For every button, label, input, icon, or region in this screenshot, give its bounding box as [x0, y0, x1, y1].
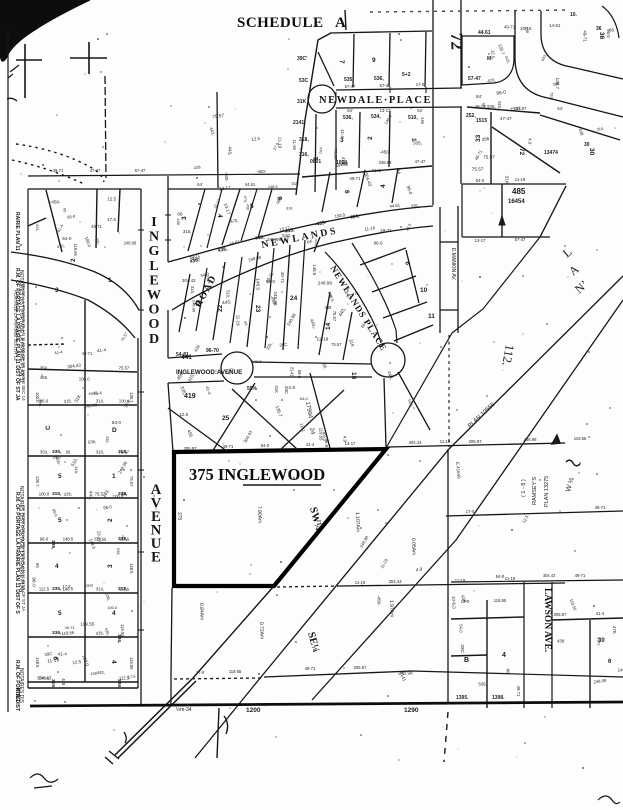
svg-text:112.5: 112.5 [39, 587, 50, 592]
svg-text:5: 5 [250, 203, 254, 210]
svg-text:535.: 535. [344, 77, 354, 83]
svg-text:66: 66 [506, 669, 511, 675]
svg-text:1: 1 [108, 277, 112, 284]
svg-text:10-6.0: 10-6.0 [451, 596, 456, 609]
svg-text:RAMSEY’S: RAMSEY’S [532, 477, 538, 505]
svg-text:536,: 536, [116, 548, 121, 556]
svg-text:536,: 536, [374, 76, 384, 82]
svg-text:22: 22 [217, 304, 224, 312]
svg-text:17.5: 17.5 [107, 217, 117, 222]
svg-text:0.72Am: 0.72Am [258, 622, 265, 639]
svg-text:4.9: 4.9 [416, 566, 423, 572]
svg-text:75.57: 75.57 [95, 492, 106, 497]
svg-text:438: 438 [90, 671, 97, 676]
svg-text:17-0: 17-0 [416, 82, 425, 87]
svg-text:64’: 64’ [476, 94, 482, 99]
svg-text:335,: 335, [105, 436, 110, 444]
svg-text:O: O [149, 303, 160, 318]
svg-text:4: 4 [110, 660, 117, 664]
svg-text:R.M. OF PORTAGE LA PRAIRIE PLA: R.M. OF PORTAGE LA PRAIRIE PLAN 11 DIST … [14, 268, 20, 401]
svg-text:47-47: 47-47 [415, 159, 426, 164]
svg-text:119.55: 119.55 [129, 657, 134, 670]
svg-text:6: 6 [277, 196, 284, 200]
svg-text:438: 438 [325, 305, 333, 310]
svg-text:64': 64' [417, 108, 423, 113]
svg-text:1.97Am: 1.97Am [388, 600, 395, 617]
svg-text:E.MANKIN AV.: E.MANKIN AV. [450, 248, 456, 281]
svg-text:1: 1 [112, 473, 116, 480]
svg-text:510,: 510, [550, 93, 555, 101]
svg-text:315,: 315, [52, 491, 62, 497]
svg-text:57-47: 57-47 [135, 168, 146, 173]
svg-text:536,: 536, [343, 115, 353, 121]
svg-text:72: 72 [447, 32, 467, 50]
svg-text:205.97: 205.97 [184, 446, 197, 451]
svg-text:I: I [151, 215, 156, 230]
svg-text:5+2: 5+2 [402, 72, 411, 78]
svg-text:49-71: 49-71 [583, 30, 588, 42]
svg-text:64': 64' [557, 106, 563, 111]
svg-text:100.0: 100.0 [119, 398, 130, 404]
svg-text:510,: 510, [408, 115, 418, 121]
svg-text:310,: 310, [96, 398, 104, 403]
svg-text:335,: 335, [96, 630, 105, 636]
svg-text:18: 18 [350, 372, 357, 380]
svg-text:17-0: 17-0 [196, 670, 205, 675]
svg-text:49-71: 49-71 [53, 168, 64, 173]
svg-text:13-17: 13-17 [380, 108, 391, 113]
svg-text:11-19: 11-19 [317, 336, 329, 342]
svg-text:49-71: 49-71 [380, 228, 392, 233]
svg-text:148.5: 148.5 [35, 657, 40, 668]
svg-text:318,: 318, [299, 137, 309, 143]
svg-text:9: 9 [372, 57, 376, 64]
svg-text:4.9: 4.9 [527, 138, 532, 145]
svg-text:315,: 315, [183, 229, 192, 234]
svg-text:375 INGLEWOOD: 375 INGLEWOOD [189, 465, 325, 484]
svg-text:49-71: 49-71 [65, 625, 76, 630]
svg-text:3: 3 [55, 287, 59, 294]
svg-text:75.57: 75.57 [129, 476, 134, 487]
svg-text:39C: 39C [44, 651, 52, 657]
svg-text:D: D [112, 427, 117, 434]
svg-text:54-0: 54-0 [62, 236, 72, 241]
svg-text:5: 5 [58, 473, 62, 480]
svg-text:96-0: 96-0 [40, 399, 49, 404]
svg-text:100.0: 100.0 [79, 376, 90, 381]
svg-text:336,: 336, [50, 540, 56, 550]
svg-text:1.107Am: 1.107Am [354, 512, 361, 532]
svg-text:7: 7 [338, 60, 345, 64]
svg-text:4: 4 [216, 214, 223, 218]
svg-text:53C: 53C [299, 78, 309, 84]
svg-text:350,: 350, [40, 449, 48, 454]
svg-text:( 1 - 8 ): ( 1 - 8 ) [521, 479, 527, 497]
svg-text:148.5: 148.5 [312, 264, 317, 275]
svg-text:148.5: 148.5 [252, 359, 263, 364]
svg-text:2: 2 [70, 258, 77, 262]
svg-text:25: 25 [222, 415, 230, 422]
svg-text:4: 4 [380, 184, 387, 188]
svg-text:148.5: 148.5 [618, 668, 623, 673]
svg-text:-450-: -450- [224, 172, 229, 183]
svg-text:31K: 31K [297, 99, 307, 105]
svg-text:470,: 470, [57, 243, 65, 249]
svg-text:11-19: 11-19 [278, 137, 283, 149]
svg-text:350,: 350, [40, 365, 48, 370]
svg-text:RAIRIE PLAN 11: RAIRIE PLAN 11 [14, 212, 20, 251]
svg-text:75.57: 75.57 [472, 166, 484, 171]
svg-text:1395.: 1395. [456, 695, 469, 701]
svg-text:3: 3 [107, 564, 114, 568]
svg-text:24: 24 [290, 295, 298, 302]
svg-text:438: 438 [61, 678, 66, 686]
svg-text:57-47: 57-47 [515, 237, 526, 242]
svg-text:205.97: 205.97 [469, 439, 482, 444]
svg-text:148.5: 148.5 [63, 537, 74, 542]
svg-text:N: N [149, 230, 159, 245]
svg-text:248.98: 248.98 [318, 280, 333, 285]
svg-text:31K: 31K [291, 180, 299, 186]
svg-text:315,: 315, [74, 466, 79, 474]
svg-text:75.57: 75.57 [332, 311, 337, 322]
svg-text:54-0: 54-0 [476, 178, 485, 183]
svg-text:-450-: -450- [256, 169, 267, 174]
svg-text:470,: 470, [243, 196, 248, 204]
svg-text:72: 72 [518, 148, 525, 156]
svg-text:D: D [149, 332, 159, 347]
svg-text:11-19: 11-19 [355, 580, 366, 585]
svg-text:44.61: 44.61 [245, 182, 256, 187]
svg-text:B: B [464, 657, 469, 664]
svg-text:470,: 470, [352, 291, 360, 296]
svg-text:47-47: 47-47 [90, 168, 101, 173]
svg-text:E: E [149, 273, 158, 288]
svg-text:536,: 536, [479, 682, 487, 687]
svg-text:14: 14 [325, 322, 332, 330]
svg-text:252,: 252, [466, 113, 476, 119]
svg-text:57-47: 57-47 [345, 84, 356, 89]
svg-text:66: 66 [63, 208, 68, 212]
svg-text:336,: 336, [116, 679, 122, 689]
svg-text:64': 64' [347, 108, 353, 113]
svg-text:12.5: 12.5 [491, 50, 496, 59]
svg-text:1398.: 1398. [492, 695, 505, 701]
svg-text:L: L [149, 259, 158, 274]
svg-text:6: 6 [343, 190, 350, 194]
svg-text:14-61: 14-61 [549, 23, 561, 28]
svg-text:100.0: 100.0 [39, 492, 50, 497]
svg-text:304.43: 304.43 [346, 285, 351, 298]
svg-text:112.5: 112.5 [119, 586, 130, 592]
svg-text:54-81: 54-81 [176, 352, 189, 358]
svg-text:7.90Am: 7.90Am [256, 506, 263, 523]
svg-text:49-71: 49-71 [305, 666, 316, 671]
svg-text:5: 5 [58, 610, 62, 617]
svg-text:17-0: 17-0 [466, 509, 475, 514]
svg-text:75.57: 75.57 [119, 366, 130, 371]
svg-text:10: 10 [420, 287, 428, 294]
svg-text:510,: 510, [497, 101, 502, 109]
svg-text:438: 438 [557, 638, 565, 643]
svg-text:9: 9 [405, 261, 412, 265]
svg-text:443,: 443, [35, 224, 40, 232]
svg-text:16454: 16454 [508, 199, 525, 205]
svg-text:119.55: 119.55 [574, 436, 587, 441]
svg-text:304.43: 304.43 [409, 440, 422, 445]
svg-text:49-71: 49-71 [504, 24, 516, 29]
svg-text:335,: 335, [487, 104, 496, 110]
svg-text:510,: 510, [226, 290, 231, 298]
svg-text:310,: 310, [96, 586, 104, 591]
svg-text:304.43: 304.43 [182, 278, 196, 283]
svg-text:1515: 1515 [476, 118, 487, 124]
svg-text:470,: 470, [319, 147, 323, 154]
svg-text:100.0: 100.0 [35, 392, 40, 403]
svg-text:456: 456 [40, 375, 48, 380]
svg-text:41-4: 41-4 [306, 442, 315, 447]
svg-text:205.97: 205.97 [554, 612, 567, 617]
svg-text:49-71: 49-71 [595, 505, 606, 510]
svg-text:54-0: 54-0 [300, 396, 309, 401]
svg-text:LAWSON AVE.: LAWSON AVE. [542, 588, 552, 652]
svg-text:10.: 10. [570, 12, 578, 18]
svg-text:54-0: 54-0 [496, 574, 505, 579]
svg-text:4: 4 [112, 610, 116, 617]
svg-text:30: 30 [588, 148, 595, 156]
svg-text:119.55: 119.55 [80, 622, 95, 628]
svg-text:O: O [149, 317, 160, 332]
svg-text:41-4: 41-4 [93, 391, 103, 396]
svg-text:205.97: 205.97 [354, 665, 367, 670]
svg-text:49-71: 49-71 [82, 351, 93, 356]
svg-text:11-19: 11-19 [515, 177, 526, 182]
svg-text:1290: 1290 [404, 707, 419, 714]
svg-text:119.55: 119.55 [494, 598, 507, 603]
svg-text:534,: 534, [371, 114, 381, 120]
svg-text:31K: 31K [504, 176, 509, 184]
svg-text:1: 1 [313, 156, 320, 160]
svg-text:375: 375 [176, 512, 182, 521]
svg-text:11-19: 11-19 [440, 439, 451, 444]
svg-text:248.98: 248.98 [273, 291, 278, 306]
svg-text:11-19: 11-19 [505, 576, 516, 581]
svg-text:-450-: -450- [380, 149, 391, 155]
svg-text:31K: 31K [274, 385, 279, 393]
svg-text:443,: 443, [89, 491, 94, 500]
svg-text:75.57: 75.57 [333, 148, 338, 160]
svg-text:96-0: 96-0 [374, 241, 383, 246]
svg-text:12.5: 12.5 [179, 412, 188, 417]
svg-text:13-17: 13-17 [475, 238, 486, 243]
svg-text:112.5: 112.5 [119, 536, 130, 542]
svg-text:SCHEDULE A: SCHEDULE A [237, 15, 346, 31]
svg-text:N 11 DIST: N 11 DIST [14, 688, 20, 711]
svg-text:54-0: 54-0 [84, 583, 93, 588]
svg-text:119.55: 119.55 [229, 669, 242, 674]
svg-text:443,: 443, [97, 670, 105, 675]
svg-text:96-70: 96-70 [206, 348, 219, 354]
svg-text:33: 33 [475, 134, 482, 142]
svg-text:96-0: 96-0 [30, 577, 36, 587]
svg-text:57-47: 57-47 [468, 76, 481, 82]
svg-text:443,: 443, [227, 146, 232, 155]
svg-text:E: E [151, 550, 161, 566]
svg-text:17-0: 17-0 [461, 599, 470, 604]
svg-text:36: 36 [598, 32, 605, 40]
svg-text:13474: 13474 [544, 150, 558, 156]
svg-text:2: 2 [107, 518, 114, 522]
svg-text:119.55: 119.55 [319, 428, 324, 441]
svg-text:47-47: 47-47 [500, 116, 512, 121]
svg-text:0.84Am: 0.84Am [198, 603, 205, 620]
svg-text:49-71: 49-71 [280, 272, 285, 284]
svg-text:335,: 335, [64, 491, 73, 497]
svg-text:4.9: 4.9 [288, 385, 295, 391]
svg-text:57-47: 57-47 [380, 83, 391, 88]
svg-text:49-71: 49-71 [475, 104, 486, 109]
svg-text:4: 4 [502, 652, 506, 659]
svg-text:31K: 31K [286, 205, 293, 210]
svg-text:1: 1 [410, 138, 417, 142]
svg-text:54-0: 54-0 [261, 443, 270, 448]
svg-text:9: 9 [53, 656, 60, 660]
svg-text:3: 3 [181, 216, 188, 220]
svg-text:315,: 315, [64, 398, 73, 404]
svg-text:49-71: 49-71 [223, 444, 234, 449]
svg-text:0.05Am: 0.05Am [410, 538, 417, 555]
svg-text:41-4: 41-4 [58, 651, 68, 656]
svg-text:148.5: 148.5 [62, 586, 74, 592]
svg-text:5: 5 [58, 517, 62, 524]
svg-text:119.55: 119.55 [120, 624, 125, 637]
svg-text:39C: 39C [460, 644, 465, 653]
svg-text:135.7: 135.7 [35, 476, 40, 487]
svg-text:11-19: 11-19 [235, 315, 240, 326]
svg-text:304.43: 304.43 [389, 579, 402, 584]
svg-text:PLAN 13275: PLAN 13275 [544, 476, 550, 507]
svg-text:148.5: 148.5 [39, 675, 50, 681]
svg-text:66: 66 [177, 212, 183, 217]
svg-text:2141: 2141 [372, 168, 382, 173]
svg-text:248.98: 248.98 [398, 671, 413, 677]
svg-text:485: 485 [512, 187, 526, 196]
svg-text:49-71: 49-71 [91, 224, 103, 229]
svg-text:112.5: 112.5 [119, 676, 130, 681]
svg-text:1200: 1200 [246, 707, 261, 714]
svg-text:OF PORTAGE LA PRAIRIE PLAN 11: OF PORTAGE LA PRAIRIE PLAN 11 DIST OF ST… [21, 505, 26, 611]
svg-text:11-19: 11-19 [292, 140, 297, 151]
svg-text:470,: 470, [612, 626, 617, 635]
svg-text:96-0: 96-0 [40, 537, 49, 542]
svg-text:248.98: 248.98 [379, 160, 392, 165]
svg-text:315,: 315, [190, 286, 195, 294]
svg-text:58-0: 58-0 [297, 370, 302, 379]
svg-text:4: 4 [55, 563, 59, 570]
svg-text:304.43: 304.43 [543, 573, 556, 578]
svg-text:13-17: 13-17 [345, 441, 356, 446]
svg-text:W: W [147, 288, 161, 303]
svg-text:49-71: 49-71 [575, 573, 586, 578]
svg-text:148.5: 148.5 [256, 278, 261, 290]
svg-text:75.57: 75.57 [118, 449, 130, 455]
svg-text:335,: 335, [52, 586, 62, 592]
svg-text:39C’: 39C’ [297, 56, 308, 62]
svg-text:316,: 316, [299, 152, 309, 158]
svg-text:119.55: 119.55 [73, 243, 78, 256]
svg-text:58-0: 58-0 [266, 279, 275, 284]
svg-text:66: 66 [66, 450, 71, 455]
svg-text:11-19: 11-19 [455, 578, 466, 583]
svg-text:66: 66 [609, 27, 614, 32]
svg-text:310,: 310, [96, 450, 104, 455]
svg-text:248.98: 248.98 [124, 241, 137, 246]
svg-text:49-71: 49-71 [349, 176, 361, 181]
svg-text:RTAGE LA PRAIRIE PLAN 11 DIST: RTAGE LA PRAIRIE PLAN 11 DIST OF ST JAME… [21, 282, 26, 401]
svg-text:64': 64' [197, 182, 203, 187]
svg-text:-450-: -450- [377, 595, 382, 606]
svg-text:248.98: 248.98 [524, 437, 537, 442]
svg-text:54-0: 54-0 [459, 624, 464, 633]
svg-text:3: 3 [340, 137, 344, 144]
svg-text:64': 64' [342, 161, 348, 166]
svg-text:2141: 2141 [597, 637, 601, 645]
svg-text:12.5: 12.5 [107, 196, 116, 201]
svg-text:23: 23 [254, 305, 261, 313]
svg-text:443,: 443, [314, 239, 319, 247]
svg-text:75.57: 75.57 [331, 342, 342, 347]
svg-text:119.55: 119.55 [94, 536, 107, 542]
svg-text:½m-34: ½m-34 [176, 706, 192, 713]
svg-text:44.61: 44.61 [478, 30, 491, 36]
svg-text:75.57: 75.57 [483, 154, 495, 159]
svg-text:456: 456 [420, 117, 425, 125]
svg-text:248.98: 248.98 [267, 237, 282, 242]
svg-text:205.97: 205.97 [514, 106, 527, 111]
svg-text:49-71: 49-71 [516, 686, 521, 698]
svg-text:R.M. OF PORTAGE LA PRAIRIE PLA: R.M. OF PORTAGE LA PRAIRIE PLAN 11 DIST … [14, 492, 20, 614]
svg-text:41-4: 41-4 [596, 611, 605, 616]
svg-text:G: G [149, 244, 160, 259]
svg-text:148.5: 148.5 [129, 563, 134, 574]
svg-text:510,: 510, [282, 233, 291, 238]
svg-text:54-0: 54-0 [112, 420, 122, 425]
svg-text:2141: 2141 [289, 367, 294, 377]
svg-text:17: 17 [194, 300, 201, 308]
svg-text:C: C [45, 425, 52, 430]
svg-text:2141: 2141 [293, 120, 304, 126]
svg-text:-450-: -450- [50, 200, 61, 205]
svg-text:2: 2 [367, 136, 374, 140]
svg-text:148.5: 148.5 [268, 185, 278, 189]
svg-text:66: 66 [35, 563, 40, 568]
svg-text:11: 11 [428, 313, 435, 320]
svg-text:135.7: 135.7 [129, 392, 134, 403]
